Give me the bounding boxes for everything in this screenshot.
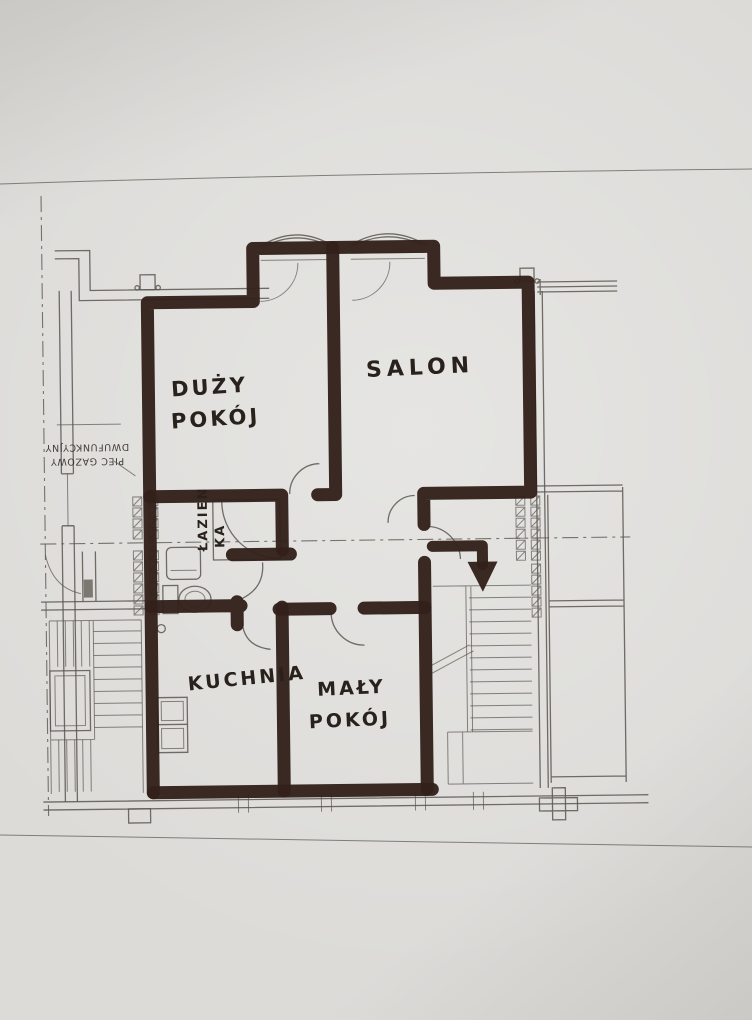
sheet-bottom-edge-line	[0, 835, 752, 847]
chimney-right-dot	[535, 279, 539, 283]
right-wall-lower	[425, 562, 428, 789]
maly-pokoj-top-wall	[279, 607, 425, 609]
vestibule-walls	[40, 551, 149, 610]
duzy-salon-divider-wall	[315, 248, 336, 495]
boiler-note: PIEC GAZOWY DWUFUNKCYJNY	[45, 424, 136, 477]
balcony-door-swing-duzy	[260, 263, 298, 301]
room-label-maly-pokoj: MAŁY POKÓJ	[307, 676, 392, 734]
axis-line-horizontal	[40, 537, 630, 544]
kitchen-appliance-inner	[162, 728, 184, 748]
duzy-pokoj-label-line2: POKÓJ	[170, 403, 261, 434]
lift-shaft-inner	[55, 676, 86, 726]
neighbor-rooms-right	[537, 485, 627, 783]
stair-treads	[469, 597, 533, 730]
paper-edge-lines	[0, 169, 752, 847]
neighbor-vestibule-left	[40, 551, 149, 610]
bottom-wall	[153, 789, 432, 792]
stair-flight-right	[93, 631, 142, 728]
entrance-arrow-head	[468, 562, 498, 592]
stair-flight-lower	[59, 740, 92, 792]
sheet-top-edge-line	[0, 169, 752, 184]
pier-bottom-left	[129, 809, 151, 823]
lazienka-label-line2: KA	[213, 524, 228, 548]
chimney-left-dot	[156, 285, 160, 289]
floor-plan-photo: PIEC GAZOWY DWUFUNKCYJNY DUŻY POKÓJ SALO…	[0, 0, 752, 1020]
door-arc-maly-pokoj	[331, 612, 364, 645]
kitchen-appliance-inner	[161, 701, 183, 720]
main-staircase	[427, 585, 533, 784]
gas-point	[157, 625, 165, 633]
axis-line-vertical	[41, 196, 49, 816]
lazienka-label-line1: ŁAZIEN	[196, 487, 212, 553]
maly-pokoj-label-line2: POKÓJ	[308, 706, 391, 734]
window-left	[67, 474, 68, 526]
building-wall-left	[59, 291, 77, 802]
kitchen-fixtures	[156, 624, 188, 752]
salon-label: SALON	[365, 353, 474, 383]
door-arc-salon	[388, 496, 415, 523]
floor-plan-drawing: PIEC GAZOWY DWUFUNKCYJNY DUŻY POKÓJ SALO…	[0, 0, 752, 1020]
neighbor-wall-top-right	[537, 278, 617, 295]
bathroom-wall-stub	[232, 554, 290, 555]
room-label-duzy-pokoj: DUŻY POKÓJ	[168, 371, 261, 434]
balcony-door-swing-salon	[352, 262, 390, 300]
chimney-left	[140, 275, 155, 290]
stair-landing	[448, 731, 534, 784]
plan-tilt-group: PIEC GAZOWY DWUFUNKCYJNY DUŻY POKÓJ SALO…	[36, 189, 649, 826]
stair-stringer	[433, 585, 533, 732]
boiler-note-line1: PIEC GAZOWY	[50, 455, 124, 467]
stair-flight-upper	[57, 621, 90, 667]
door-arc-kitchen	[242, 622, 270, 649]
kitchen-maly-divider-wall	[282, 607, 284, 791]
stairwell-wall-right	[534, 291, 548, 788]
door-arc-bathroom	[242, 562, 264, 598]
neighbor-wall-top-left	[55, 248, 270, 301]
duzy-pokoj-label-line1: DUŻY	[170, 372, 248, 402]
building-wall-bottom	[43, 795, 648, 810]
chimney-left-dot	[135, 286, 139, 290]
maly-pokoj-label-line1: MAŁY	[317, 676, 387, 701]
boiler-note-line2: DWUFUNKCYJNY	[45, 441, 129, 453]
vestibule-pier	[84, 579, 93, 597]
